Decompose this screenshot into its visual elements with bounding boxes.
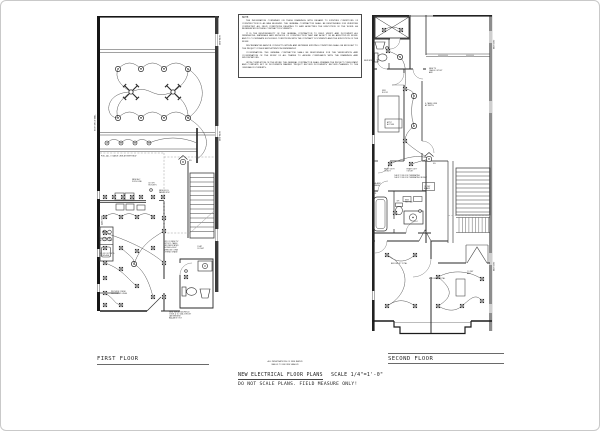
annotation-text: NEW WIRING AS REQDCODE & (1) 20A CIRCUIT… [169, 311, 192, 320]
certification-line: WALLS TO BE FIRE SEALED [256, 364, 314, 367]
annotation-text: PULL ALL 3 CABLE LINE AT BSMT BLW [101, 155, 137, 158]
annotation-text: NEW WDW [494, 261, 496, 271]
outlet-symbol-icon [382, 28, 386, 32]
outlet-symbol-icon [393, 211, 397, 215]
annotation-text: HEAVY DUTYOUTLET [407, 168, 419, 173]
outlet-symbol-icon [103, 276, 107, 280]
outlet-symbol-icon [139, 195, 143, 199]
gfi-symbol-icon [150, 189, 153, 192]
annotation-text: PROVIDE 2 NEWDEDICATED LINES [111, 291, 128, 295]
first-floor-plan: PULL ALL 3 CABLE LINE AT BSMT BLWNEW A/C… [94, 16, 222, 320]
outlet-symbol-icon [103, 246, 107, 250]
annotation-text: NEWMED CAB [405, 200, 412, 204]
outlet-symbol-icon [480, 277, 484, 281]
light-symbol-icon [161, 66, 166, 71]
second-floor-label: SECOND FLOOR [388, 353, 504, 364]
annotation-text: KITCHEN [101, 215, 104, 225]
outlet-symbol-icon [162, 261, 166, 265]
sd-symbol-icon [425, 153, 434, 162]
outlet-symbol-icon [151, 246, 155, 250]
outlet-symbol-icon [135, 215, 139, 219]
outlet-symbol-icon [103, 291, 107, 295]
lightsm-symbol-icon [119, 141, 123, 145]
annotation-text: NEW WDW [220, 35, 222, 45]
annotation-text: NEW A/C220V LINE [132, 178, 143, 183]
notes-title: NOTE: [242, 17, 358, 20]
sheet-title-text: NEW ELECTRICAL FLOOR PLANS [238, 372, 323, 380]
gfi-symbol-icon [419, 210, 422, 213]
outlet-symbol-icon [399, 28, 403, 32]
light-symbol-icon [138, 115, 143, 120]
outlet-symbol-icon [103, 195, 107, 199]
light-symbol-icon [115, 66, 120, 71]
outlet-symbol-icon [119, 303, 123, 307]
annotation-text: ATTICACCESS [387, 121, 395, 126]
outlet-symbol-icon [151, 295, 155, 299]
second-floor-radiator [456, 279, 465, 296]
outlet-symbol-icon [130, 195, 134, 199]
second-floor-walls [372, 15, 493, 334]
outlet-symbol-icon [103, 231, 107, 235]
annotation-text: ALARMPANEL [375, 182, 381, 187]
note-paragraph: IT IS THE RESPONSIBILITY OF THE GENERAL … [242, 33, 358, 44]
gfi-symbol-icon [386, 47, 389, 50]
annotation-text: GFI [397, 201, 400, 203]
outlet-symbol-icon [385, 304, 389, 308]
light-symbol-icon [161, 115, 166, 120]
light-symbol-icon [138, 66, 143, 71]
annotation-text: BED RM 'A' TOTAL [429, 277, 445, 280]
outlet-symbol-icon [112, 195, 116, 199]
outlet-symbol-icon [388, 162, 392, 166]
first-floor-fixtures [103, 66, 190, 306]
light-symbol-icon [411, 123, 416, 128]
outlet-symbol-icon [151, 195, 155, 199]
outlet-symbol-icon [162, 216, 166, 220]
outlet-symbol-icon [413, 304, 417, 308]
first-floor-stairs [190, 173, 214, 238]
gfi-symbol-icon [185, 270, 188, 273]
annotation-text: 3RDROOM [382, 90, 388, 94]
lightsm-symbol-icon [133, 141, 137, 145]
annotation-text: BED RM 'B' TOTAL [391, 262, 407, 265]
outlet-symbol-icon [413, 253, 417, 257]
outlet-symbol-icon [119, 246, 123, 250]
annotation-text: NEW WDW [364, 60, 374, 62]
drawing-sheet: PULL ALL 3 CABLE LINE AT BSMT BLWNEW A/C… [0, 0, 600, 431]
outlet-symbol-icon [480, 299, 484, 303]
fan-symbol-icon [123, 84, 139, 100]
outlet-symbol-icon [436, 304, 440, 308]
outlet-symbol-icon [385, 253, 389, 257]
annotation-text: HEAVY DUTYOUTLET [384, 168, 396, 173]
outlet-symbol-icon [403, 87, 407, 91]
light-symbol-icon [397, 54, 402, 59]
annotation-text: S CABLE LINEAT DEPTH [425, 102, 438, 107]
outlet-symbol-icon [135, 284, 139, 288]
outlet-symbol-icon [460, 304, 464, 308]
annotation-text: SD [374, 193, 377, 195]
second-floor-stairs [448, 168, 490, 233]
first-floor-bathroom [180, 259, 213, 308]
annotation-text: COATCLOSET [197, 245, 205, 250]
outlet-symbol-icon [119, 215, 123, 219]
annotation-text: CHECK CODE FOR TERMINATINGCHECK CODE FOR… [394, 174, 427, 179]
annotation-text: CO DETABV [467, 271, 474, 275]
sheet-scale-text: SCALE 1/4"=1'-0" [331, 372, 383, 378]
annotation-text: NEW WDW [494, 39, 496, 49]
annotation-text: EXIST BRICK WALL [94, 114, 97, 131]
annotation-text: SD [189, 160, 192, 162]
fan-symbol-icon [165, 84, 181, 100]
outlet-symbol-icon [103, 261, 107, 265]
outlet-symbol-icon [161, 195, 165, 199]
certification-note: ALL PENETRATIONS OF FIRE RATED WALLS TO … [256, 361, 314, 366]
second-floor-plan: NEW TVCABLE OUTLETABVS CABLE LINEAT DEPT… [364, 15, 496, 334]
outlet-symbol-icon [151, 215, 155, 219]
note-paragraph: COORDINATION: THE GENERAL CONTRACTOR SHA… [242, 52, 358, 60]
lightsm-symbol-icon [147, 141, 151, 145]
annotation-text: (2) GFIOUTLETS [148, 183, 157, 187]
note-paragraph: THE INFORMATION CONTAINED ON THESE DRAWI… [242, 20, 358, 31]
outlet-symbol-icon [403, 139, 407, 143]
first-floor-label: FIRST FLOOR [97, 356, 209, 365]
outlet-symbol-icon [184, 275, 188, 279]
lightsm-symbol-icon [105, 141, 109, 145]
outlet-symbol-icon [162, 229, 166, 233]
annotation-text: ADD (1) NEW TVOUTLET, CABLEAND DEDICATED… [164, 240, 180, 253]
no-scale-warning: DO NOT SCALE PLANS. FIELD MEASURE ONLY! [238, 382, 358, 387]
second-floor-toilet-room [375, 42, 388, 62]
annotation-text: NEW WDW [220, 131, 222, 141]
outlet-symbol-icon [409, 162, 413, 166]
outlet-symbol-icon [386, 49, 390, 53]
note-paragraph: UPON COMPLETION OF THE WORK, THE GENERAL… [242, 62, 358, 70]
outlet-symbol-icon [103, 303, 107, 307]
outlet-symbol-icon [162, 295, 166, 299]
first-floor-walls [97, 16, 219, 311]
annotation-text: NEW TVCABLE OUTLETABV [429, 68, 443, 74]
general-notes-box: NOTE: THE INFORMATION CONTAINED ON THESE… [238, 14, 362, 78]
note-paragraph: DISCREPANCIES AND/OR CONFLICTS WITHIN AN… [242, 45, 358, 50]
outlet-symbol-icon [119, 267, 123, 271]
annotation-text: NEW SQ DPANEL BOX [159, 190, 170, 194]
annotation-text: SD [433, 163, 436, 165]
second-floor-skylight [375, 17, 409, 38]
sheet-title: NEW ELECTRICAL FLOOR PLANS SCALE 1/4"=1'… [238, 372, 383, 378]
outlet-symbol-icon [135, 249, 139, 253]
outlet-symbol-icon [121, 195, 125, 199]
annotation-text: CO DETBOARD [424, 186, 431, 190]
